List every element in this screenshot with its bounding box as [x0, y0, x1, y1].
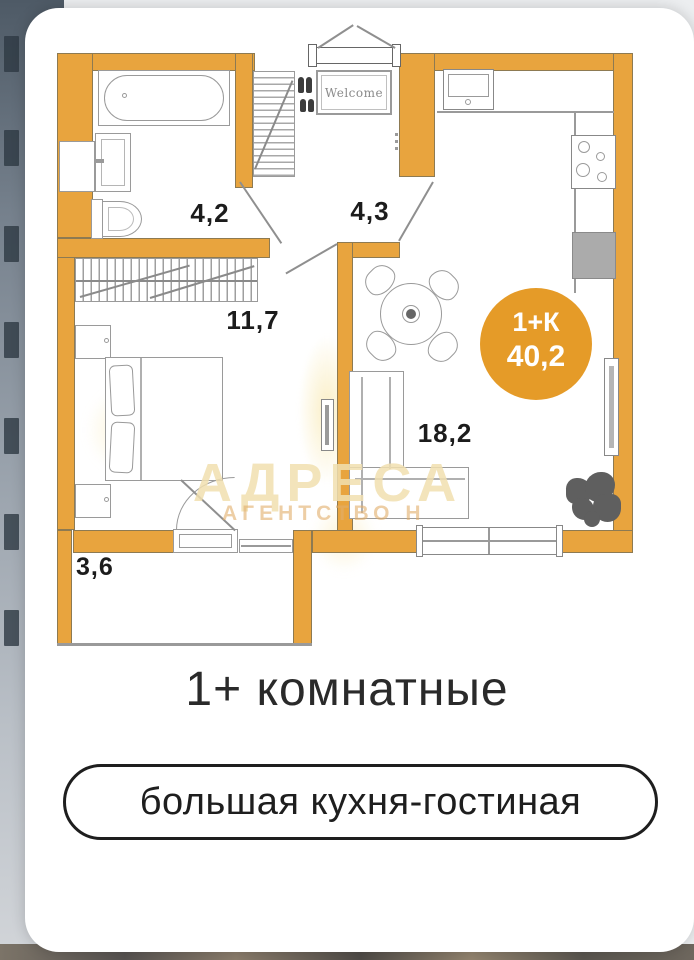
building-window: [4, 322, 19, 358]
wall-right: [613, 53, 633, 553]
caption-title: 1+ комнатные: [25, 662, 669, 717]
wall-bathroom-bedroom: [57, 238, 270, 258]
stove-burner: [597, 172, 607, 182]
badge-type: 1+К: [480, 307, 592, 338]
living-window-divider: [488, 528, 490, 554]
vent-dot: [395, 140, 398, 143]
tv-bedroom-screen: [325, 405, 329, 445]
bathroom-area-label: 4,2: [178, 198, 242, 229]
pillow-icon: [109, 364, 136, 416]
bed-headboard-line: [140, 358, 142, 480]
shoes-icon: [308, 99, 314, 112]
wall-balcony-right: [293, 530, 312, 645]
washing-machine-knob: [465, 99, 471, 105]
building-window: [4, 36, 19, 72]
badge-area: 40,2: [480, 340, 592, 374]
shoes-icon: [300, 99, 306, 112]
building-window: [4, 418, 19, 454]
balcony-area-label: 3,6: [76, 553, 136, 582]
bathtub-drain: [122, 93, 127, 98]
hallway-cabinet-icon: [253, 71, 295, 177]
entrance-door-leaf: [313, 47, 397, 64]
living-area-label: 18,2: [407, 418, 483, 449]
wall-left-balcony: [57, 530, 72, 645]
caption-pill-text: большая кухня-гостиная: [140, 781, 582, 824]
watermark-subtitle: АГЕНТСТВО Н: [222, 502, 426, 526]
tv-living-screen: [609, 366, 614, 448]
building-window: [4, 130, 19, 166]
stove-burner: [578, 141, 590, 153]
building-window: [4, 226, 19, 262]
balcony-railing: [57, 643, 312, 646]
shoes-icon: [298, 77, 304, 93]
bedroom-area-label: 11,7: [215, 305, 291, 336]
building-window: [4, 514, 19, 550]
shoes-icon: [306, 77, 312, 93]
living-window-line: [422, 540, 558, 542]
pillow-icon: [109, 421, 136, 473]
wall-left-bedroom: [57, 238, 75, 530]
wall-bathroom-hallway: [235, 53, 253, 188]
bedroom-low-window-line: [241, 545, 291, 547]
plant-icon: [584, 511, 600, 527]
dining-table-decor: [406, 309, 416, 319]
stove-icon: [571, 135, 616, 189]
caption-pill: большая кухня-гостиная: [63, 764, 658, 840]
stove-burner: [596, 152, 605, 161]
window-post: [556, 525, 563, 557]
wardrobe-rail: [76, 280, 258, 282]
vent-dot: [395, 133, 398, 136]
nightstand-knob: [104, 497, 109, 502]
kitchen-counter-edge: [437, 111, 614, 113]
wall-hallway-kitchen-pillar: [399, 53, 435, 177]
wardrobe-icon: [75, 258, 258, 302]
stove-burner: [576, 163, 590, 177]
window-post: [416, 525, 423, 557]
sink-niche: [59, 141, 95, 192]
cabinet-hatch-line: [254, 80, 293, 169]
welcome-mat-border: [321, 75, 387, 110]
sink-faucet: [95, 159, 104, 163]
entrance-door-post: [308, 44, 317, 67]
welcome-mat: Welcome: [316, 70, 392, 115]
wall-bottom-bedroom: [73, 530, 175, 553]
bathtub-basin: [104, 75, 224, 121]
hallway-area-label: 4,3: [338, 196, 402, 227]
vent-dot: [395, 147, 398, 150]
balcony-door-leaf: [179, 534, 232, 548]
fridge-icon: [572, 232, 616, 279]
apartment-type-badge: 1+К 40,2: [480, 288, 592, 400]
washing-machine-lid: [448, 74, 489, 97]
building-window: [4, 610, 19, 646]
nightstand-knob: [104, 338, 109, 343]
sink-basin: [101, 139, 125, 186]
